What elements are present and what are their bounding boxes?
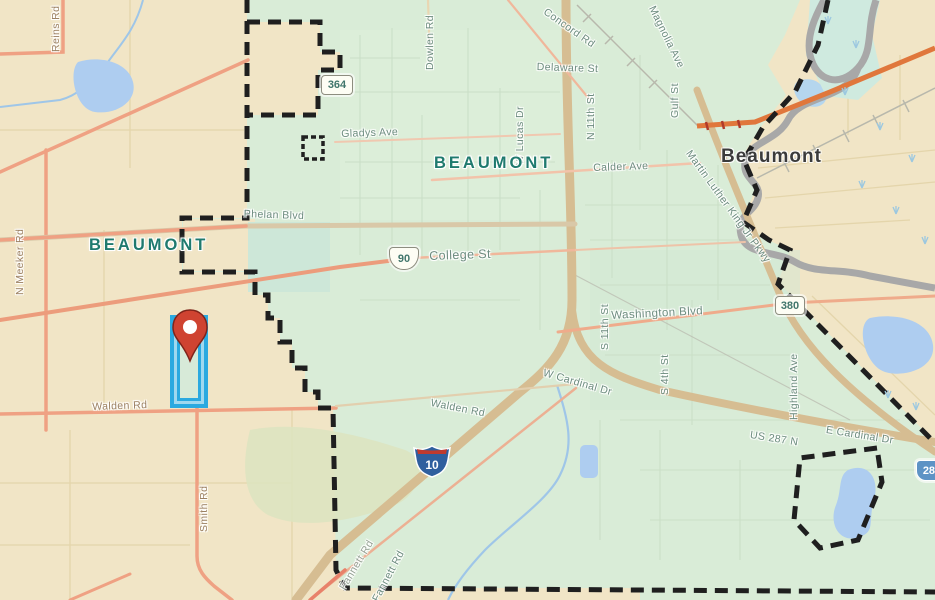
road-label-s-11th: S 11th St	[599, 304, 611, 350]
road-label-calder: Calder Ave	[593, 160, 649, 174]
map-canvas[interactable]: Reins Rd N Meeker Rd Dowlen Rd Gladys Av…	[0, 0, 935, 600]
road-label-college: College St	[429, 247, 491, 263]
route-shield-364: 364	[321, 75, 353, 95]
city-limits-label-west: BEAUMONT	[89, 236, 208, 255]
place-label-beaumont: Beaumont	[721, 146, 822, 168]
road-label-delaware: Delaware St	[537, 61, 599, 75]
road-label-dowlen: Dowlen Rd	[424, 15, 436, 70]
route-shield-us90-text: 90	[398, 253, 410, 265]
route-shield-us287-text: 287	[923, 465, 935, 477]
road-label-phelan: Phelan Blvd	[244, 208, 305, 222]
route-shield-i10-text: 10	[425, 458, 439, 472]
route-shield-364-text: 364	[328, 79, 346, 91]
road-label-gladys: Gladys Ave	[341, 126, 398, 140]
phelan-patch	[248, 222, 330, 292]
route-shield-i10: 10	[413, 445, 451, 478]
road-label-walden-west: Walden Rd	[92, 399, 148, 413]
road-label-smith: Smith Rd	[198, 486, 210, 532]
road-label-gulf: Gulf St	[669, 83, 681, 118]
road-label-n-meeker: N Meeker Rd	[14, 229, 26, 295]
route-shield-380: 380	[775, 296, 805, 315]
route-shield-380-text: 380	[781, 300, 799, 312]
city-limits-label-center: BEAUMONT	[434, 154, 553, 173]
road-label-highland: Highland Ave	[788, 354, 800, 421]
route-shield-us287: 287	[916, 460, 935, 481]
road-label-reins: Reins Rd	[50, 6, 62, 52]
location-pin[interactable]	[172, 309, 208, 363]
road-label-n-11th: N 11th St	[585, 93, 597, 140]
road-label-s-4th: S 4th St	[659, 354, 671, 395]
